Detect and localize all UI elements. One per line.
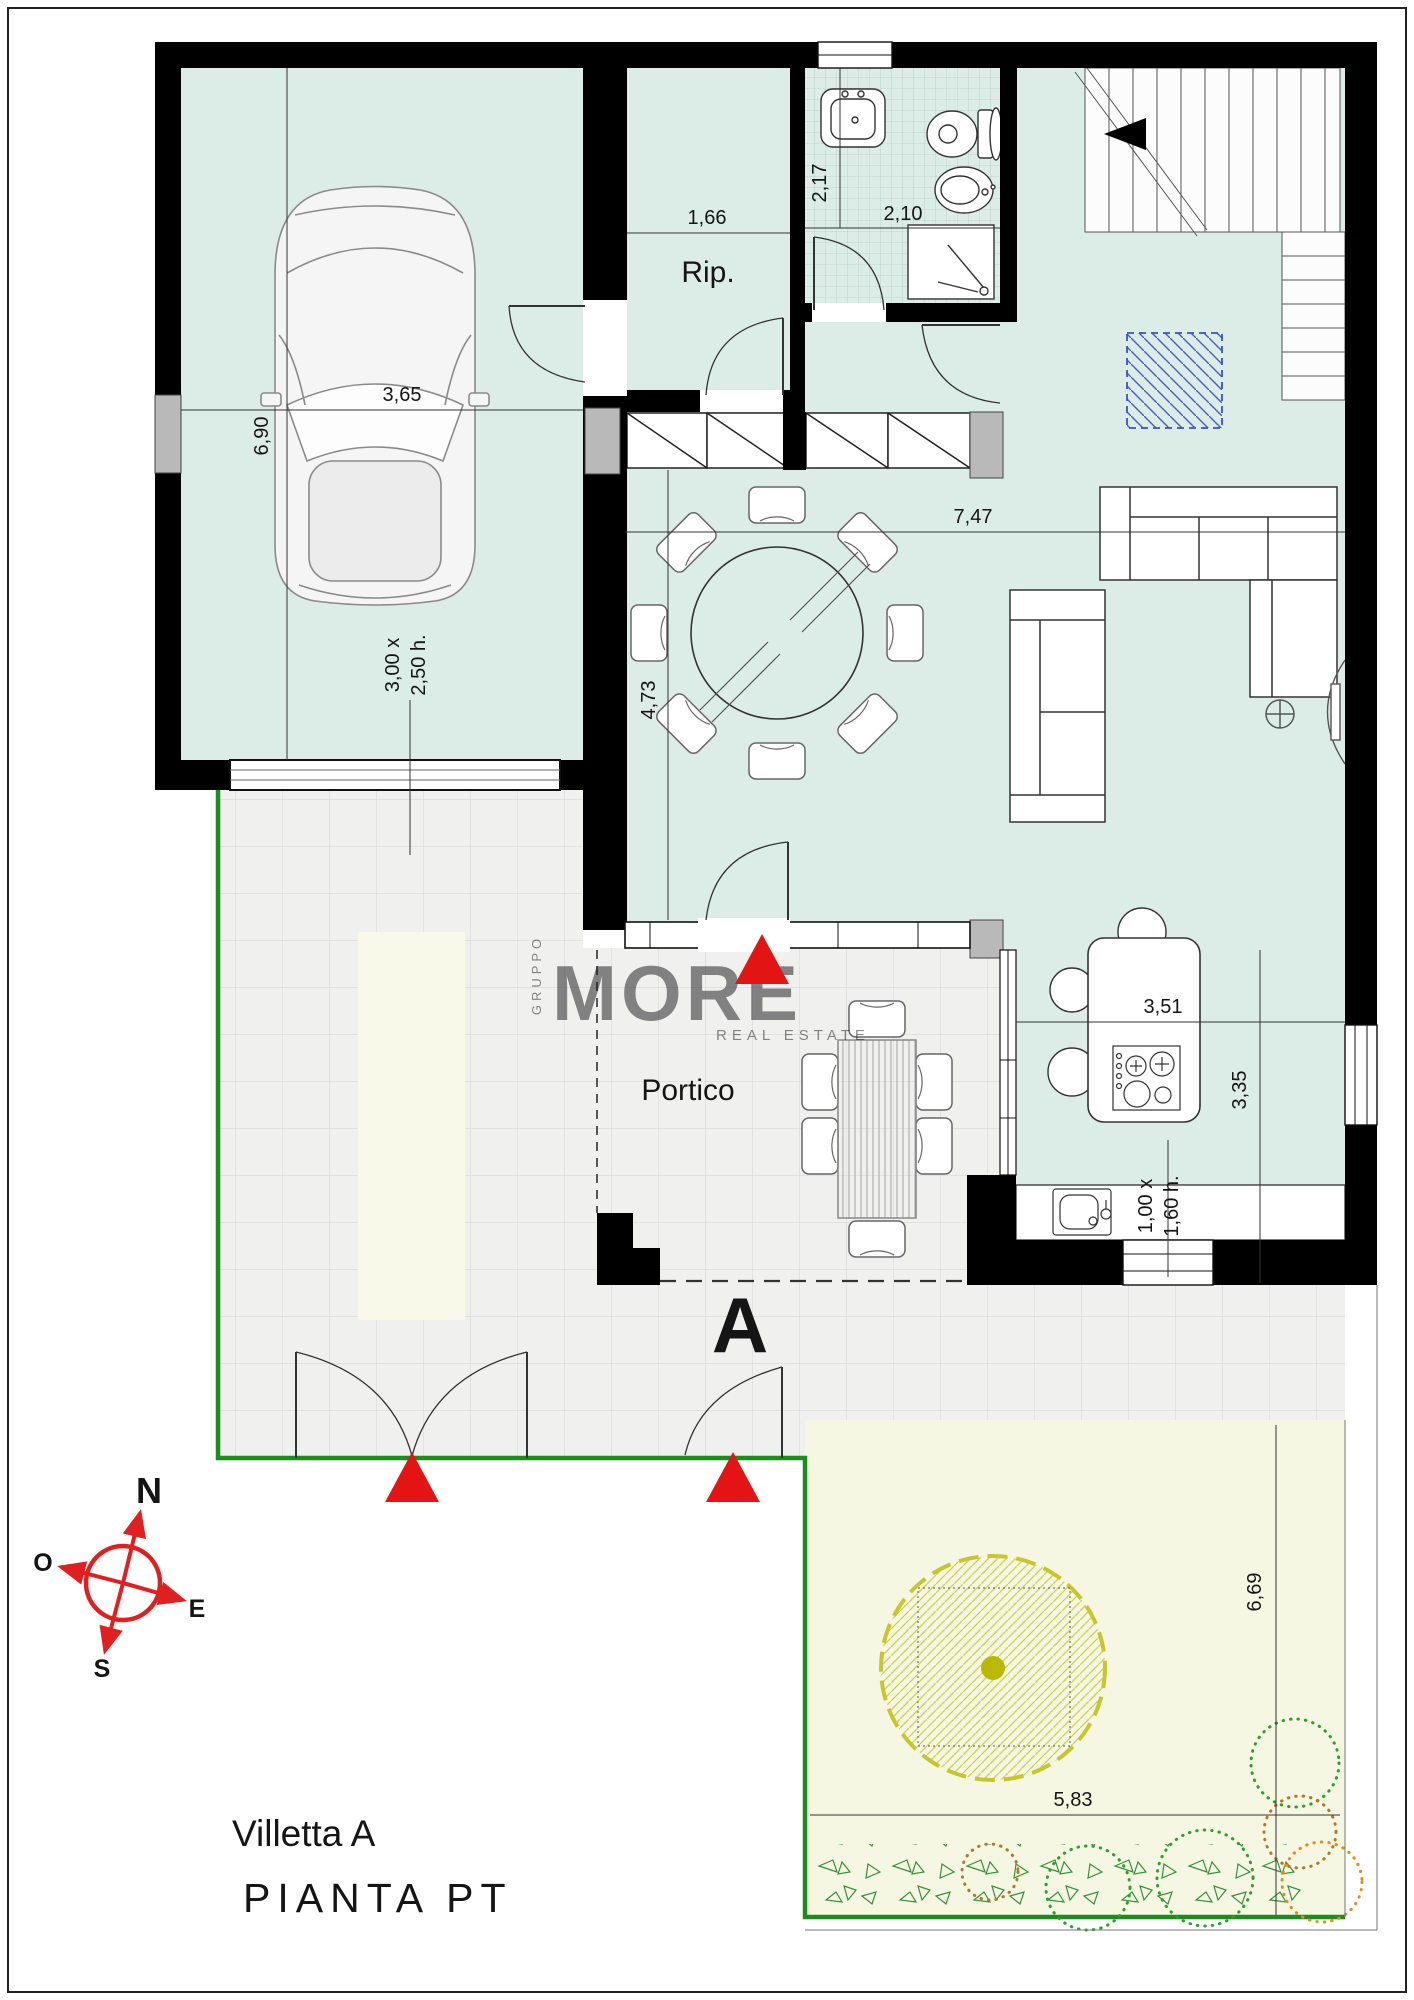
svg-text:5,83: 5,83 — [1054, 1789, 1093, 1811]
kitchen-sink — [1053, 1189, 1111, 1235]
shower-icon — [908, 225, 994, 299]
car — [261, 187, 489, 606]
portico-label: Portico — [641, 1074, 734, 1107]
section-letter: A — [712, 1281, 768, 1369]
svg-text:2,10: 2,10 — [884, 203, 923, 225]
sink-icon — [821, 89, 885, 147]
svg-text:6,69: 6,69 — [1244, 1573, 1266, 1612]
compass-east-label: E — [189, 1595, 206, 1623]
compass-west-label: O — [33, 1549, 52, 1577]
svg-text:4,73: 4,73 — [638, 681, 660, 720]
tree — [881, 1556, 1105, 1780]
svg-text:6,90: 6,90 — [251, 417, 273, 456]
svg-text:2,17: 2,17 — [809, 164, 831, 203]
watermark-gruppo: GRUPPO — [529, 935, 544, 1015]
rear-paving — [1003, 1283, 1345, 1420]
svg-text:1,00 x: 1,00 x — [1135, 1179, 1157, 1233]
svg-text:2,50 h.: 2,50 h. — [408, 634, 430, 695]
toilet-icon — [927, 108, 1002, 160]
svg-text:3,65: 3,65 — [383, 384, 422, 406]
svg-text:7,47: 7,47 — [954, 506, 993, 528]
svg-text:1,66: 1,66 — [688, 207, 727, 229]
shrub-strip — [808, 1844, 1303, 1916]
storage-label: Rip. — [681, 256, 734, 289]
tree-trunk — [981, 1656, 1005, 1680]
kitchen-east-window — [1345, 1025, 1377, 1125]
svg-text:3,51: 3,51 — [1144, 996, 1183, 1018]
cooktop — [1113, 1046, 1180, 1110]
svg-text:3,35: 3,35 — [1229, 1071, 1251, 1110]
svg-text:3,00 x: 3,00 x — [382, 638, 404, 692]
floor-plan-drawing: GRUPPO MORE REAL ESTATE A 3,65 6,90 3,00… — [0, 0, 1414, 2000]
flower-bed — [358, 932, 465, 1320]
svg-text:1,60 h.: 1,60 h. — [1161, 1175, 1183, 1236]
villa-title: Villetta A — [232, 1813, 376, 1854]
outdoor-table — [838, 1040, 916, 1218]
hatched-reserved-area — [1127, 333, 1222, 428]
garage-door — [230, 760, 560, 790]
plan-title: PIANTA PT — [243, 1875, 513, 1921]
compass-south-label: S — [94, 1655, 111, 1683]
compass-north-label: N — [136, 1470, 162, 1511]
watermark-realestate: REAL ESTATE — [716, 1027, 870, 1044]
floor-plan-page: GRUPPO MORE REAL ESTATE A 3,65 6,90 3,00… — [0, 0, 1414, 2000]
